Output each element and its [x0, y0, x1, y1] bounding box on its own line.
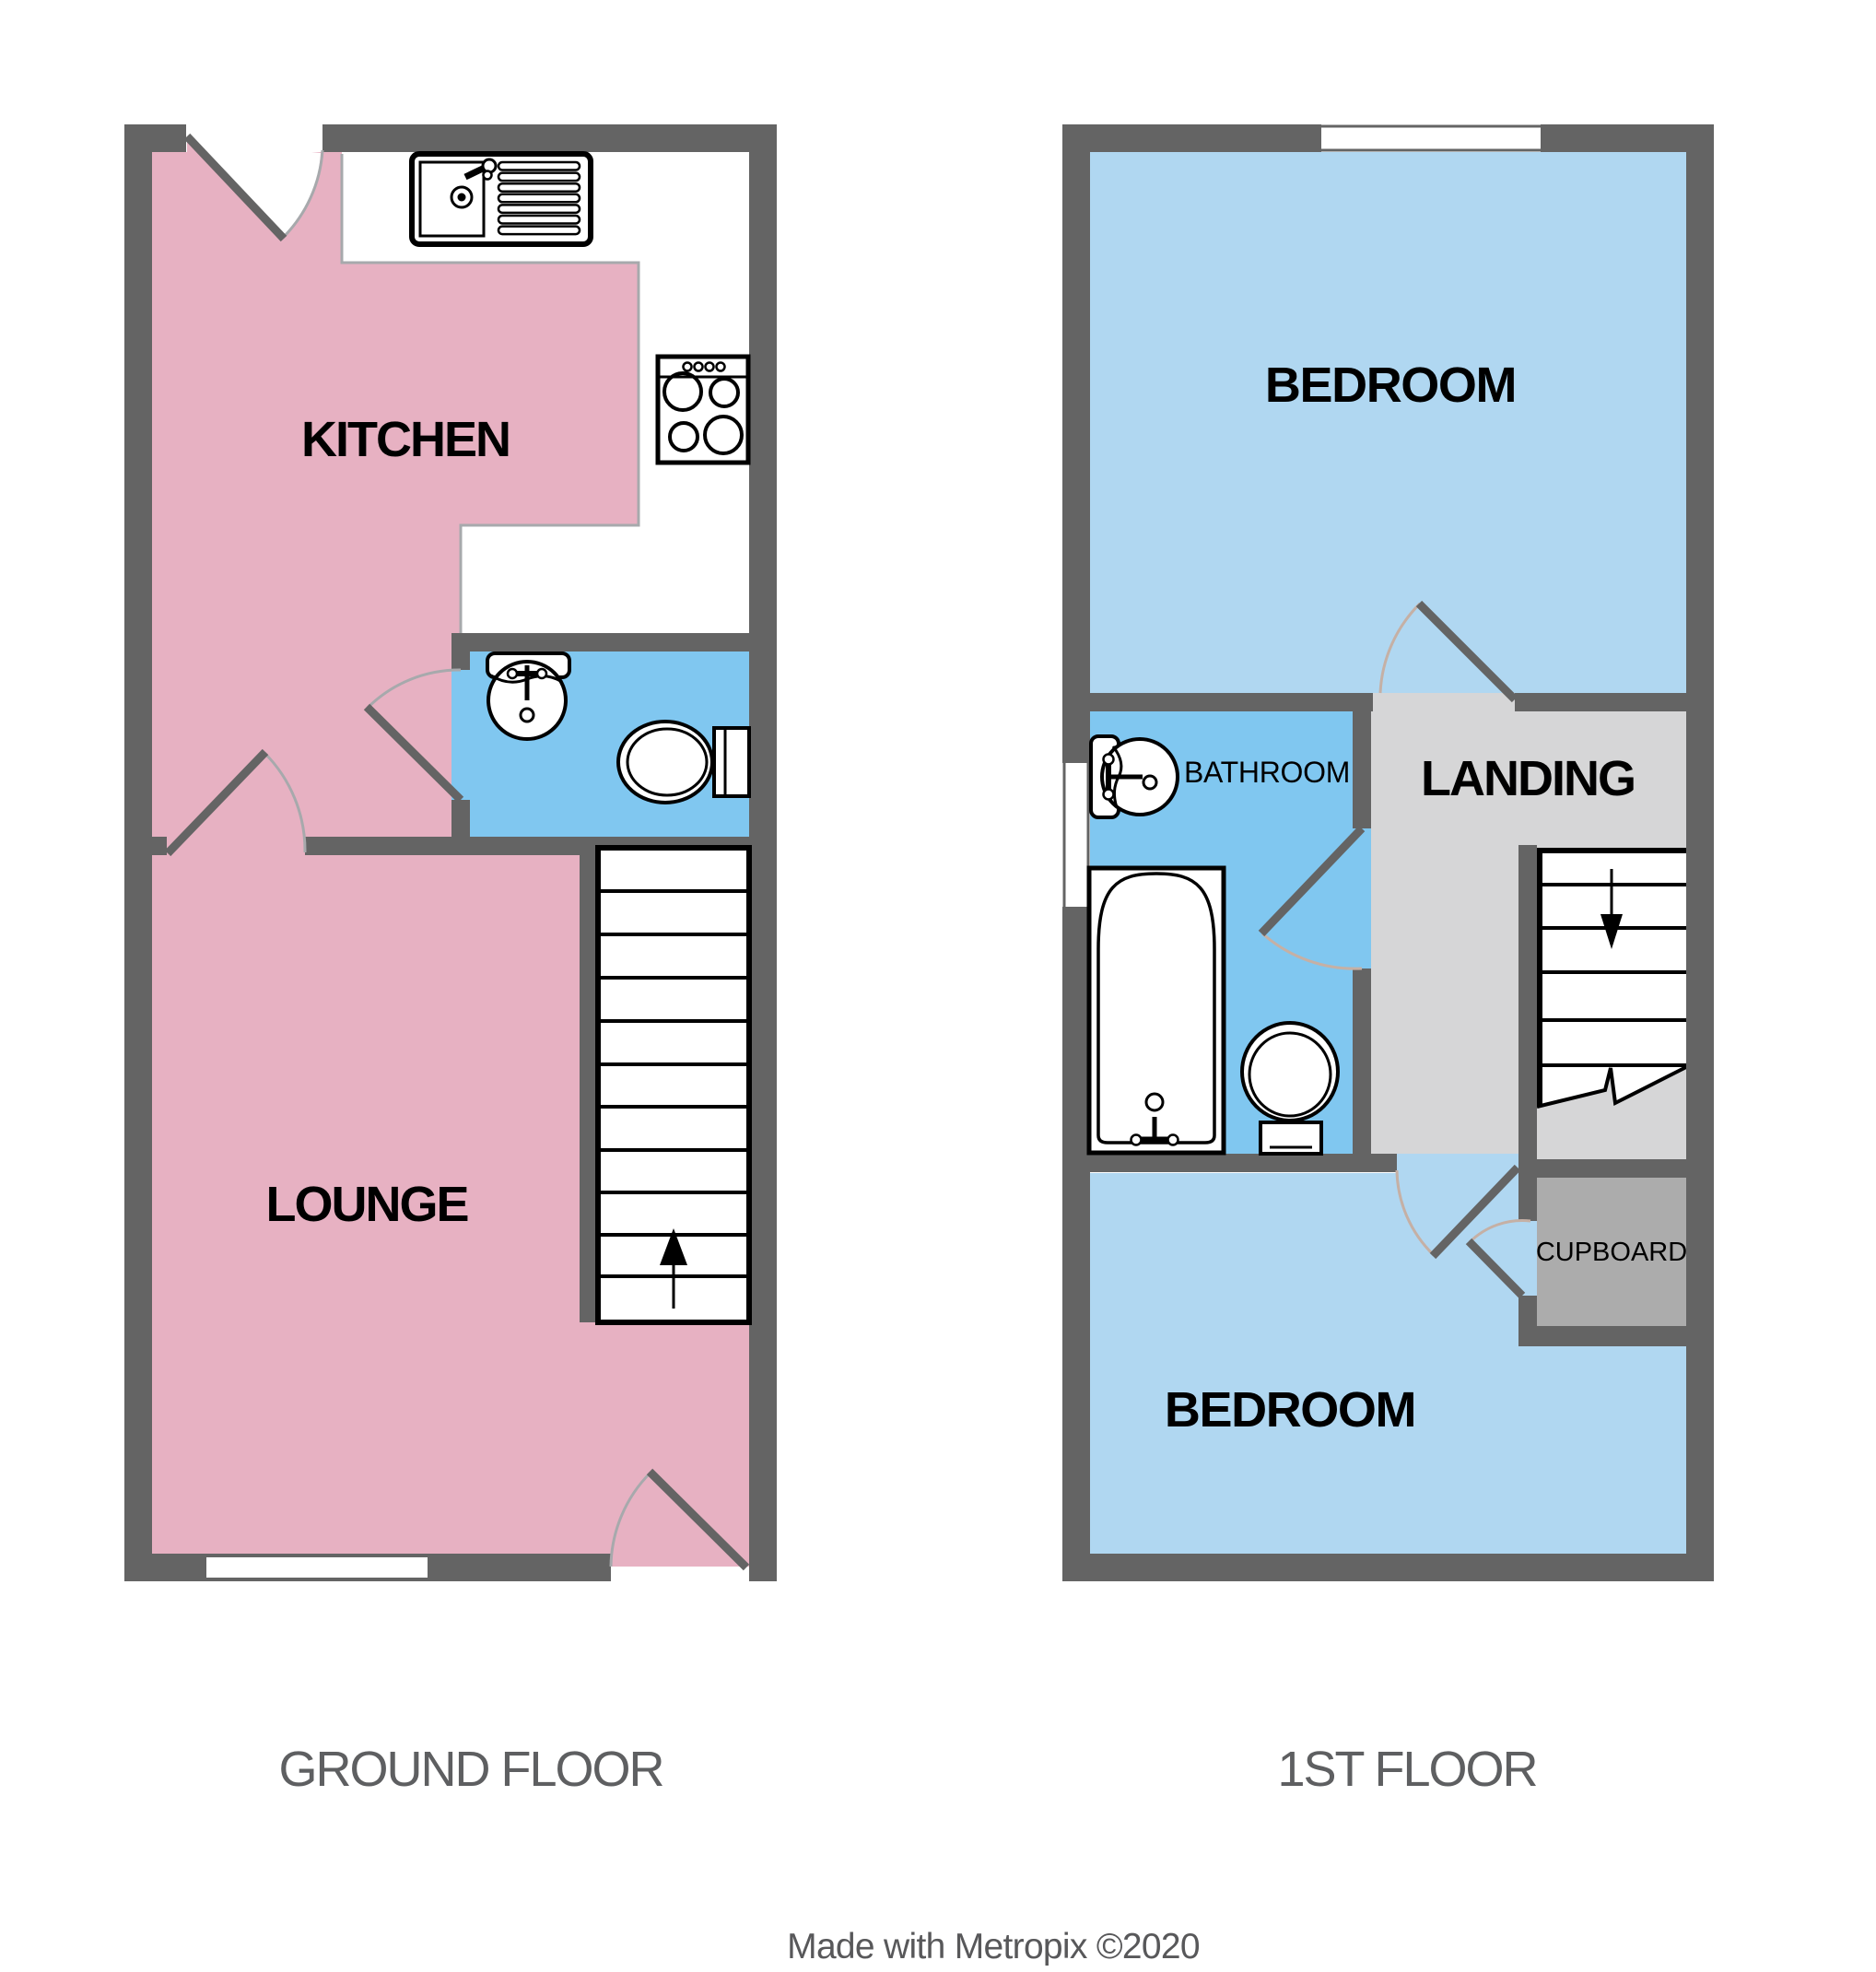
- svg-text:BEDROOM: BEDROOM: [1265, 358, 1516, 413]
- svg-text:BATHROOM: BATHROOM: [1184, 756, 1350, 789]
- svg-text:LOUNGE: LOUNGE: [265, 1177, 467, 1232]
- svg-text:LANDING: LANDING: [1421, 751, 1635, 806]
- svg-text:KITCHEN: KITCHEN: [301, 412, 510, 467]
- svg-text:1ST FLOOR: 1ST FLOOR: [1277, 1742, 1536, 1797]
- svg-text:BEDROOM: BEDROOM: [1165, 1382, 1415, 1438]
- svg-text:Made with Metropix ©2020: Made with Metropix ©2020: [787, 1927, 1200, 1966]
- svg-text:CUPBOARD: CUPBOARD: [1536, 1238, 1687, 1267]
- svg-text:GROUND FLOOR: GROUND FLOOR: [278, 1742, 662, 1797]
